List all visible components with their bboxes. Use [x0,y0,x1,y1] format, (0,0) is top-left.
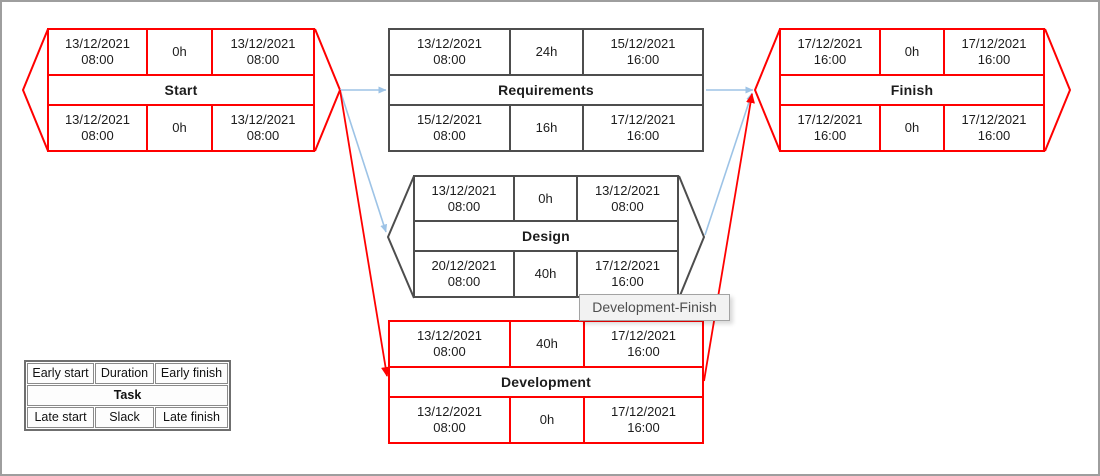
early-start-date: 13/12/2021 [417,328,482,344]
task-node-development[interactable]: 13/12/2021 08:00 40h 17/12/2021 16:00 De… [388,320,704,444]
late-finish-cell: 13/12/2021 08:00 [212,105,314,151]
late-finish-time: 16:00 [627,128,660,144]
task-name: Finish [780,75,1044,105]
task-node-start[interactable]: 13/12/2021 08:00 0h 13/12/2021 08:00 Sta… [47,28,315,152]
late-finish-date: 17/12/2021 [611,404,676,420]
late-start-date: 17/12/2021 [797,112,862,128]
early-start-cell: 13/12/2021 08:00 [389,29,510,75]
late-start-time: 16:00 [814,128,847,144]
duration-value: 40h [536,336,558,352]
duration-cell: 40h [510,321,584,367]
early-start-date: 13/12/2021 [417,36,482,52]
slack-cell: 0h [880,105,944,151]
slack-cell: 16h [510,105,583,151]
early-finish-cell: 13/12/2021 08:00 [212,29,314,75]
design-right-point [679,176,704,298]
early-finish-cell: 13/12/2021 08:00 [577,176,678,221]
early-start-date: 13/12/2021 [431,183,496,199]
duration-value: 24h [536,44,558,60]
late-start-time: 08:00 [81,128,114,144]
edge-start-development[interactable] [340,90,387,376]
legend-key: Early start Duration Early finish Task L… [24,360,231,431]
early-start-time: 16:00 [814,52,847,68]
late-finish-cell: 17/12/2021 16:00 [944,105,1044,151]
early-start-cell: 13/12/2021 08:00 [48,29,147,75]
task-node-design[interactable]: 13/12/2021 08:00 0h 13/12/2021 08:00 Des… [413,175,679,298]
finish-right-point [1045,29,1070,151]
task-name: Requirements [389,75,703,105]
start-right-point [315,29,340,151]
late-finish-time: 16:00 [611,274,644,290]
duration-value: 0h [538,191,552,207]
late-start-time: 08:00 [448,274,481,290]
duration-value: 0h [172,44,186,60]
late-finish-date: 13/12/2021 [230,112,295,128]
slack-value: 0h [172,120,186,136]
legend-late-start: Late start [27,407,94,428]
late-start-cell: 20/12/2021 08:00 [414,251,514,297]
slack-cell: 40h [514,251,577,297]
late-finish-date: 17/12/2021 [961,112,1026,128]
edge-development-finish[interactable] [704,94,752,381]
legend-task: Task [27,385,228,406]
slack-value: 0h [540,412,554,428]
late-start-cell: 17/12/2021 16:00 [780,105,880,151]
task-name: Design [414,221,678,251]
late-start-cell: 13/12/2021 08:00 [389,397,510,443]
early-finish-date: 17/12/2021 [961,36,1026,52]
early-finish-time: 16:00 [627,52,660,68]
late-finish-time: 16:00 [978,128,1011,144]
slack-cell: 0h [147,105,212,151]
early-finish-time: 08:00 [611,199,644,215]
late-start-cell: 15/12/2021 08:00 [389,105,510,151]
early-start-cell: 13/12/2021 08:00 [389,321,510,367]
legend-late-finish: Late finish [155,407,228,428]
early-start-date: 17/12/2021 [797,36,862,52]
edge-design-finish[interactable] [705,93,752,235]
late-finish-time: 08:00 [247,128,280,144]
late-start-date: 20/12/2021 [431,258,496,274]
legend-duration: Duration [95,363,154,384]
late-finish-cell: 17/12/2021 16:00 [584,397,703,443]
early-start-time: 08:00 [433,344,466,360]
start-left-point [23,29,48,151]
late-finish-cell: 17/12/2021 16:00 [583,105,703,151]
early-start-cell: 13/12/2021 08:00 [414,176,514,221]
early-finish-date: 13/12/2021 [230,36,295,52]
finish-left-point [755,29,780,151]
task-name: Development [389,367,703,397]
duration-cell: 0h [147,29,212,75]
duration-cell: 24h [510,29,583,75]
duration-cell: 0h [880,29,944,75]
early-finish-date: 13/12/2021 [595,183,660,199]
late-finish-date: 17/12/2021 [595,258,660,274]
late-start-time: 08:00 [433,128,466,144]
legend-early-start: Early start [27,363,94,384]
late-finish-time: 16:00 [627,420,660,436]
early-finish-cell: 17/12/2021 16:00 [944,29,1044,75]
early-finish-cell: 15/12/2021 16:00 [583,29,703,75]
slack-value: 40h [535,266,557,282]
late-start-date: 13/12/2021 [417,404,482,420]
early-finish-date: 17/12/2021 [611,328,676,344]
legend-early-finish: Early finish [155,363,228,384]
late-start-date: 15/12/2021 [417,112,482,128]
network-diagram-canvas: 13/12/2021 08:00 0h 13/12/2021 08:00 Sta… [0,0,1100,476]
early-start-date: 13/12/2021 [65,36,130,52]
early-finish-time: 16:00 [627,344,660,360]
edge-start-design[interactable] [340,90,386,232]
early-start-cell: 17/12/2021 16:00 [780,29,880,75]
design-left-point [388,176,414,298]
early-start-time: 08:00 [81,52,114,68]
late-start-time: 08:00 [433,420,466,436]
late-start-cell: 13/12/2021 08:00 [48,105,147,151]
slack-value: 0h [905,120,919,136]
duration-cell: 0h [514,176,577,221]
task-node-requirements[interactable]: 13/12/2021 08:00 24h 15/12/2021 16:00 Re… [388,28,704,152]
legend-slack: Slack [95,407,154,428]
early-start-time: 08:00 [433,52,466,68]
slack-cell: 0h [510,397,584,443]
late-finish-date: 17/12/2021 [610,112,675,128]
early-start-time: 08:00 [448,199,481,215]
edge-tooltip: Development-Finish [579,294,730,321]
late-finish-cell: 17/12/2021 16:00 [577,251,678,297]
slack-value: 16h [536,120,558,136]
duration-value: 0h [905,44,919,60]
task-name: Start [48,75,314,105]
late-start-date: 13/12/2021 [65,112,130,128]
early-finish-time: 08:00 [247,52,280,68]
early-finish-cell: 17/12/2021 16:00 [584,321,703,367]
early-finish-time: 16:00 [978,52,1011,68]
early-finish-date: 15/12/2021 [610,36,675,52]
task-node-finish[interactable]: 17/12/2021 16:00 0h 17/12/2021 16:00 Fin… [779,28,1045,152]
